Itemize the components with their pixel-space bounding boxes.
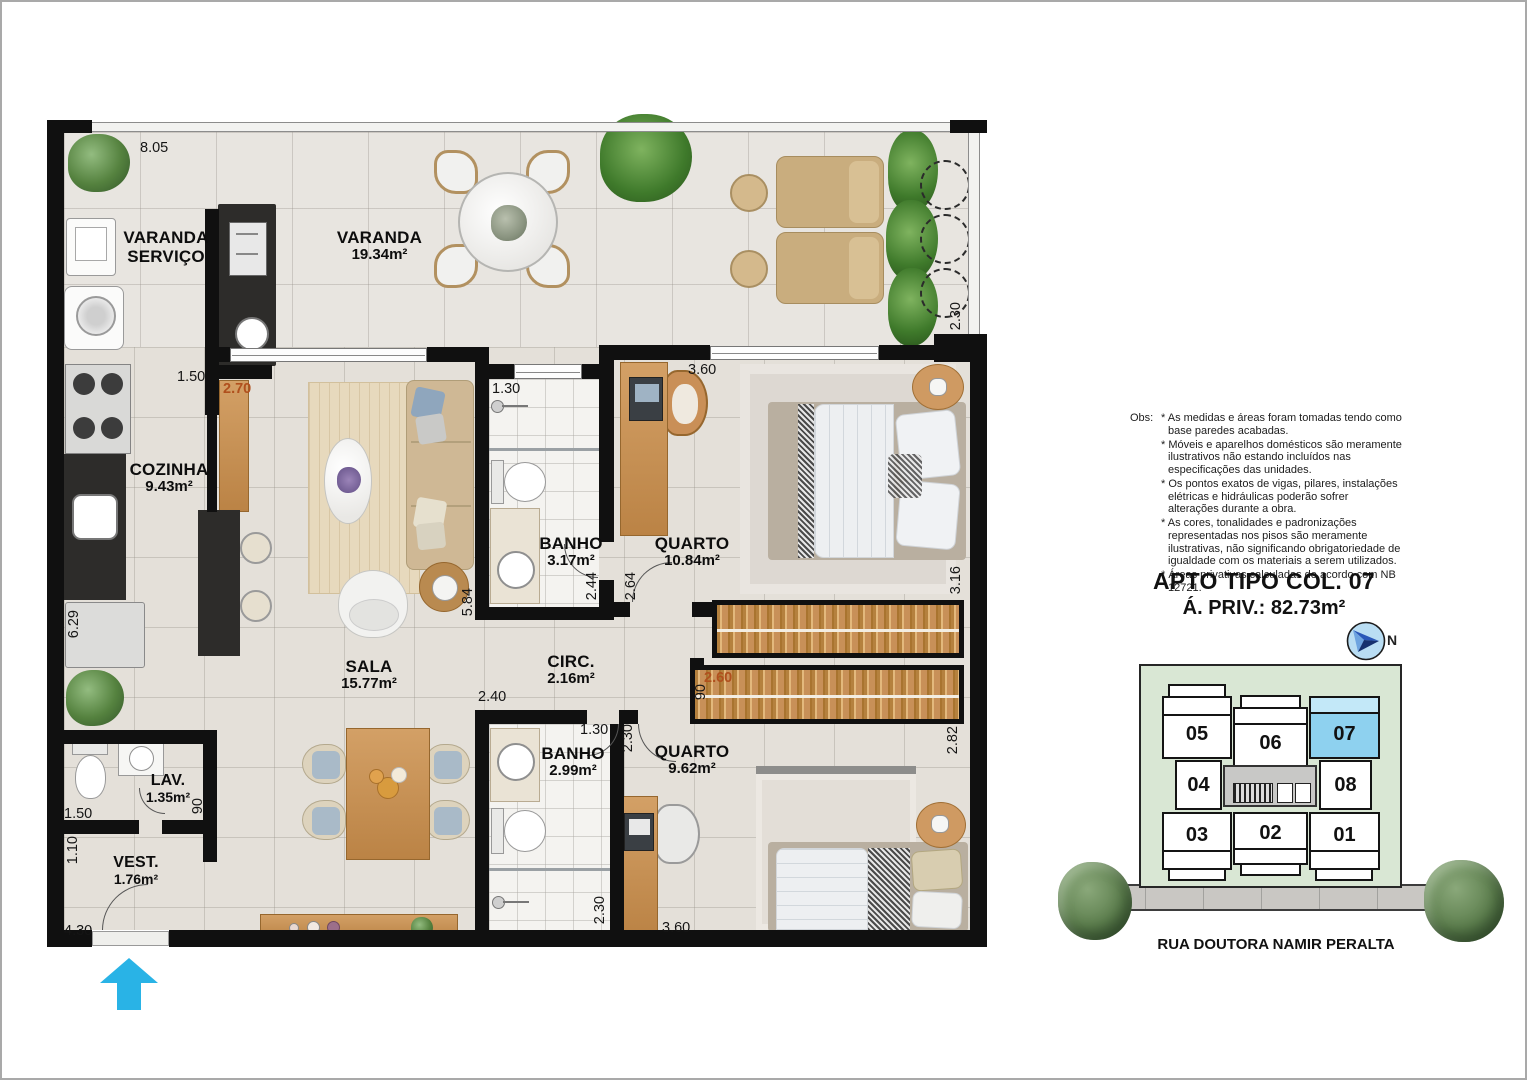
unit-number-03: 03 <box>1186 824 1208 847</box>
pouf-2 <box>730 250 768 288</box>
dining-chair-seat <box>312 751 340 779</box>
dim-wardrobe: 2.60 <box>704 670 732 686</box>
unit-number-04: 04 <box>1187 774 1209 797</box>
bed1-duvet <box>814 404 894 558</box>
wall-top-right-stub <box>950 120 987 133</box>
wardrobe-bedroom1 <box>712 600 964 658</box>
fruit-bowl-2 <box>391 767 407 783</box>
wall-vest-stub <box>203 834 217 862</box>
burner <box>73 373 95 395</box>
entrance-arrow-head <box>100 958 158 983</box>
dim-quarto1-door: 2.64 <box>623 572 639 600</box>
keyplan-core <box>1223 765 1317 807</box>
dashed-planter <box>920 160 970 210</box>
bedroom2-dresser <box>756 766 916 774</box>
unit03-balcony-divider <box>1164 850 1230 852</box>
laptop-2 <box>624 813 654 851</box>
unit05-balcony-divider <box>1164 714 1230 716</box>
armchair-seat <box>349 599 399 631</box>
bed2-plaid-runner <box>868 848 910 930</box>
kitchen-sink <box>72 494 118 540</box>
compass-rose-icon <box>1345 620 1387 662</box>
dim-cabinet: 2.70 <box>223 381 251 397</box>
label-varanda: VARANDA 19.34m² <box>327 228 432 264</box>
private-area: Á. PRIV.: 82.73m² <box>1140 597 1388 620</box>
unit-number-07: 07 <box>1333 723 1355 746</box>
unit01-balcony-divider <box>1311 850 1378 852</box>
wall-right <box>970 347 987 947</box>
bed1-plaid-runner <box>798 404 814 558</box>
sofa-pillow-gray <box>415 413 447 445</box>
wall-lav-bottom-b <box>162 820 217 834</box>
washer-drum <box>76 296 116 336</box>
entrance-door <box>92 931 169 946</box>
bar-stool <box>240 532 272 564</box>
note-item: * Móveis e aparelhos domésticos são mera… <box>1161 439 1402 477</box>
wall-bath1-left <box>475 364 489 620</box>
wall-circ-stub <box>690 658 704 668</box>
bedroom1-chair-seat <box>672 384 698 424</box>
nightstand2-lamp <box>931 815 949 833</box>
dim-vest-height: 1.10 <box>65 836 81 864</box>
lounge-backrest-2 <box>849 237 879 299</box>
dim-banho2-width: 1.30 <box>580 722 608 738</box>
bedroom1-nightstand <box>912 364 964 410</box>
dim-kitchen-height: 6.29 <box>66 610 82 638</box>
laptop2-screen <box>629 819 650 835</box>
street-tree-right <box>1424 860 1504 942</box>
keyplan-stairs <box>1233 783 1273 803</box>
dashed-planter-2 <box>920 214 970 264</box>
bedroom1-window <box>710 346 879 360</box>
dim-quarto1-width: 3.60 <box>688 362 716 378</box>
lounge-backrest <box>849 161 879 223</box>
dim-quarto1-height: 3.16 <box>948 566 964 594</box>
compass: N <box>1345 620 1387 662</box>
dining-chair-seat-4 <box>434 807 462 835</box>
lav-sink <box>129 746 154 771</box>
grill-line <box>236 233 258 235</box>
bedroom1-desk <box>620 362 668 536</box>
street-name: RUA DOUTORA NAMIR PERALTA <box>1132 936 1420 953</box>
label-banho1: BANHO 3.17m² <box>530 534 612 570</box>
bed2-pillow <box>911 848 964 891</box>
laundry-sink-basin <box>75 227 107 261</box>
dim-sala-height: 5.84 <box>460 588 476 616</box>
keyplan-unit-box-04: 04 <box>1175 760 1222 810</box>
wall-bedroom1-jamb <box>614 602 630 617</box>
toilet-tank <box>491 460 504 504</box>
wall-balcony-c <box>614 345 710 360</box>
unit-number-08: 08 <box>1334 774 1356 797</box>
toilet2-tank <box>491 808 504 854</box>
gourmet-sink <box>235 317 269 351</box>
lav-sink-counter <box>118 740 164 776</box>
dining-chair-seat-3 <box>434 751 462 779</box>
unit-number-06: 06 <box>1259 732 1281 755</box>
wall-lav-top <box>60 730 217 744</box>
bed1-plaid-pillow <box>888 454 922 498</box>
dim-top-width: 8.05 <box>140 140 168 156</box>
shower-arm <box>502 405 528 407</box>
dim-kitchen-opening: 1.50 <box>177 369 205 385</box>
fruit-bowl-3 <box>369 769 384 784</box>
dim-sala-width: 2.40 <box>478 689 506 705</box>
entrance-arrow <box>98 958 162 1012</box>
dim-lav-width: 1.50 <box>64 806 92 822</box>
dining-chair-seat-2 <box>312 807 340 835</box>
keyplan-unit-box-03: 03 <box>1162 812 1232 870</box>
unit02-balcony-divider <box>1235 848 1306 850</box>
wall-lav-bottom-a <box>60 820 139 834</box>
entrance-arrow-stem <box>117 982 141 1010</box>
burner <box>101 417 123 439</box>
unit-number-01: 01 <box>1333 824 1355 847</box>
armchair <box>338 570 408 638</box>
dining-chair-4 <box>426 800 470 840</box>
dim-balcony-depth: 2.30 <box>948 302 964 330</box>
label-varanda-servico: VARANDA SERVIÇO <box>120 228 212 266</box>
note-item: * As medidas e áreas foram tomadas tendo… <box>1161 412 1402 438</box>
dining-chair-3 <box>426 744 470 784</box>
bedroom2-desk <box>618 796 658 936</box>
keyplan-elevator-2 <box>1295 783 1311 803</box>
bedroom1-chair <box>662 370 708 436</box>
wall-bath2-left <box>475 710 489 932</box>
apartment-title: APTO TIPO COL. 07 Á. PRIV.: 82.73m² <box>1140 568 1388 620</box>
keyplan-unit-box-01: 01 <box>1309 812 1380 870</box>
dim-vest-width: 4.30 <box>64 923 92 939</box>
wall-lav-right <box>203 730 217 834</box>
bath2-sink <box>497 743 535 781</box>
toilet-bowl <box>504 462 546 502</box>
laundry-sink <box>66 218 116 276</box>
sofa-pillow-beige-2 <box>416 522 447 551</box>
laptop-screen <box>635 384 659 402</box>
keyplan-street <box>1087 884 1432 911</box>
wall-bottom <box>169 930 987 947</box>
label-quarto1: QUARTO 10.84m² <box>647 534 737 570</box>
bed2-duvet <box>776 848 868 930</box>
balcony-right-railing <box>968 130 980 338</box>
dim-banho2-height: 2.30 <box>592 896 608 924</box>
bar-stool-2 <box>240 590 272 622</box>
laptop <box>629 377 663 421</box>
lav-toilet-bowl <box>75 755 106 799</box>
apartment-type: APTO TIPO COL. 07 <box>1140 568 1388 595</box>
stove <box>65 364 131 454</box>
side-table-tray <box>432 575 458 601</box>
note-item: * As cores, tonalidades e padronizações … <box>1161 517 1402 568</box>
wall-bath2-top-b <box>619 710 638 724</box>
wall-bath2-top-a <box>475 710 587 724</box>
lounge-chair <box>776 156 884 228</box>
dim-lav-door: 90 <box>190 798 206 814</box>
label-circ: CIRC. 2.16m² <box>532 652 610 688</box>
pouf <box>730 174 768 212</box>
dining-chair <box>302 744 346 784</box>
burner <box>73 417 95 439</box>
nightstand-lamp <box>929 378 947 396</box>
tall-cabinet <box>219 380 249 512</box>
shower-divider <box>489 448 599 451</box>
keyplan-unit-box-05: 05 <box>1162 696 1232 759</box>
coffee-table-flowers <box>337 467 361 493</box>
label-banho2: BANHO 2.99m² <box>532 744 614 780</box>
bedroom2-chair <box>654 804 700 864</box>
kitchen-island <box>198 510 240 656</box>
note-item: * Os pontos exatos de vigas, pilares, in… <box>1161 478 1402 516</box>
unit07-balcony-strip <box>1311 698 1378 714</box>
wall-kitchen-top <box>207 365 272 379</box>
label-quarto2: QUARTO 9.62m² <box>647 742 737 778</box>
street-tree-left <box>1058 862 1132 940</box>
label-lav: LAV. 1.35m² <box>140 772 196 806</box>
dim-banho2-door: 2.30 <box>620 724 636 752</box>
dining-chair-2 <box>302 800 346 840</box>
keyplan-unit-box-06: 06 <box>1233 707 1308 767</box>
washing-machine <box>64 286 124 350</box>
balcony-top-railing <box>64 122 954 132</box>
grill <box>229 222 267 276</box>
unit-number-02: 02 <box>1259 822 1281 845</box>
keyplan-elevator <box>1277 783 1293 803</box>
table-centerpiece <box>491 205 527 241</box>
wall-bedroom1-jamb-2 <box>692 602 714 617</box>
wall-balcony-b <box>427 347 475 362</box>
wall-bath1-bottom <box>475 607 614 620</box>
sofa <box>406 380 474 570</box>
shower2-arm <box>503 901 529 903</box>
keyplan-unit-box-02: 02 <box>1233 812 1308 865</box>
coffee-table <box>324 438 372 524</box>
dim-banho1-height: 2.44 <box>584 572 600 600</box>
dining-table <box>346 728 430 860</box>
burner <box>101 373 123 395</box>
bedroom2-nightstand <box>916 802 966 848</box>
shower2-divider <box>489 868 610 871</box>
unit06-balcony-divider <box>1235 723 1306 725</box>
dim-quarto2-height: 2.82 <box>945 726 961 754</box>
toilet2-bowl <box>504 810 546 852</box>
bathroom1-window <box>514 364 582 379</box>
label-vest: VEST. 1.76m² <box>104 854 168 888</box>
dim-quarto2-width: 3.60 <box>662 920 690 936</box>
balcony-table <box>458 172 558 272</box>
lounge-chair-2 <box>776 232 884 304</box>
wall-balcony-d <box>879 345 987 360</box>
label-sala: SALA 15.77m² <box>330 657 408 693</box>
keyplan-unit-box-08: 08 <box>1319 760 1372 810</box>
label-cozinha: COZINHA 9.43m² <box>128 460 210 496</box>
wall-connector-2 <box>599 345 614 364</box>
page: VARANDA SERVIÇO VARANDA 19.34m² COZINHA … <box>0 0 1527 1080</box>
unit-number-05: 05 <box>1186 723 1208 746</box>
wall-bath1-right-a <box>599 364 614 542</box>
dim-banho1-width: 1.30 <box>492 381 520 397</box>
compass-north-label: N <box>1387 632 1397 648</box>
keyplan-unit-box-07: 07 <box>1309 696 1380 759</box>
wall-top-left-stub <box>47 120 92 133</box>
grill-line2 <box>236 253 258 255</box>
dim-circ-door: 90 <box>693 684 709 700</box>
living-room-window <box>230 348 427 362</box>
bed2-pillow-2 <box>911 891 963 930</box>
